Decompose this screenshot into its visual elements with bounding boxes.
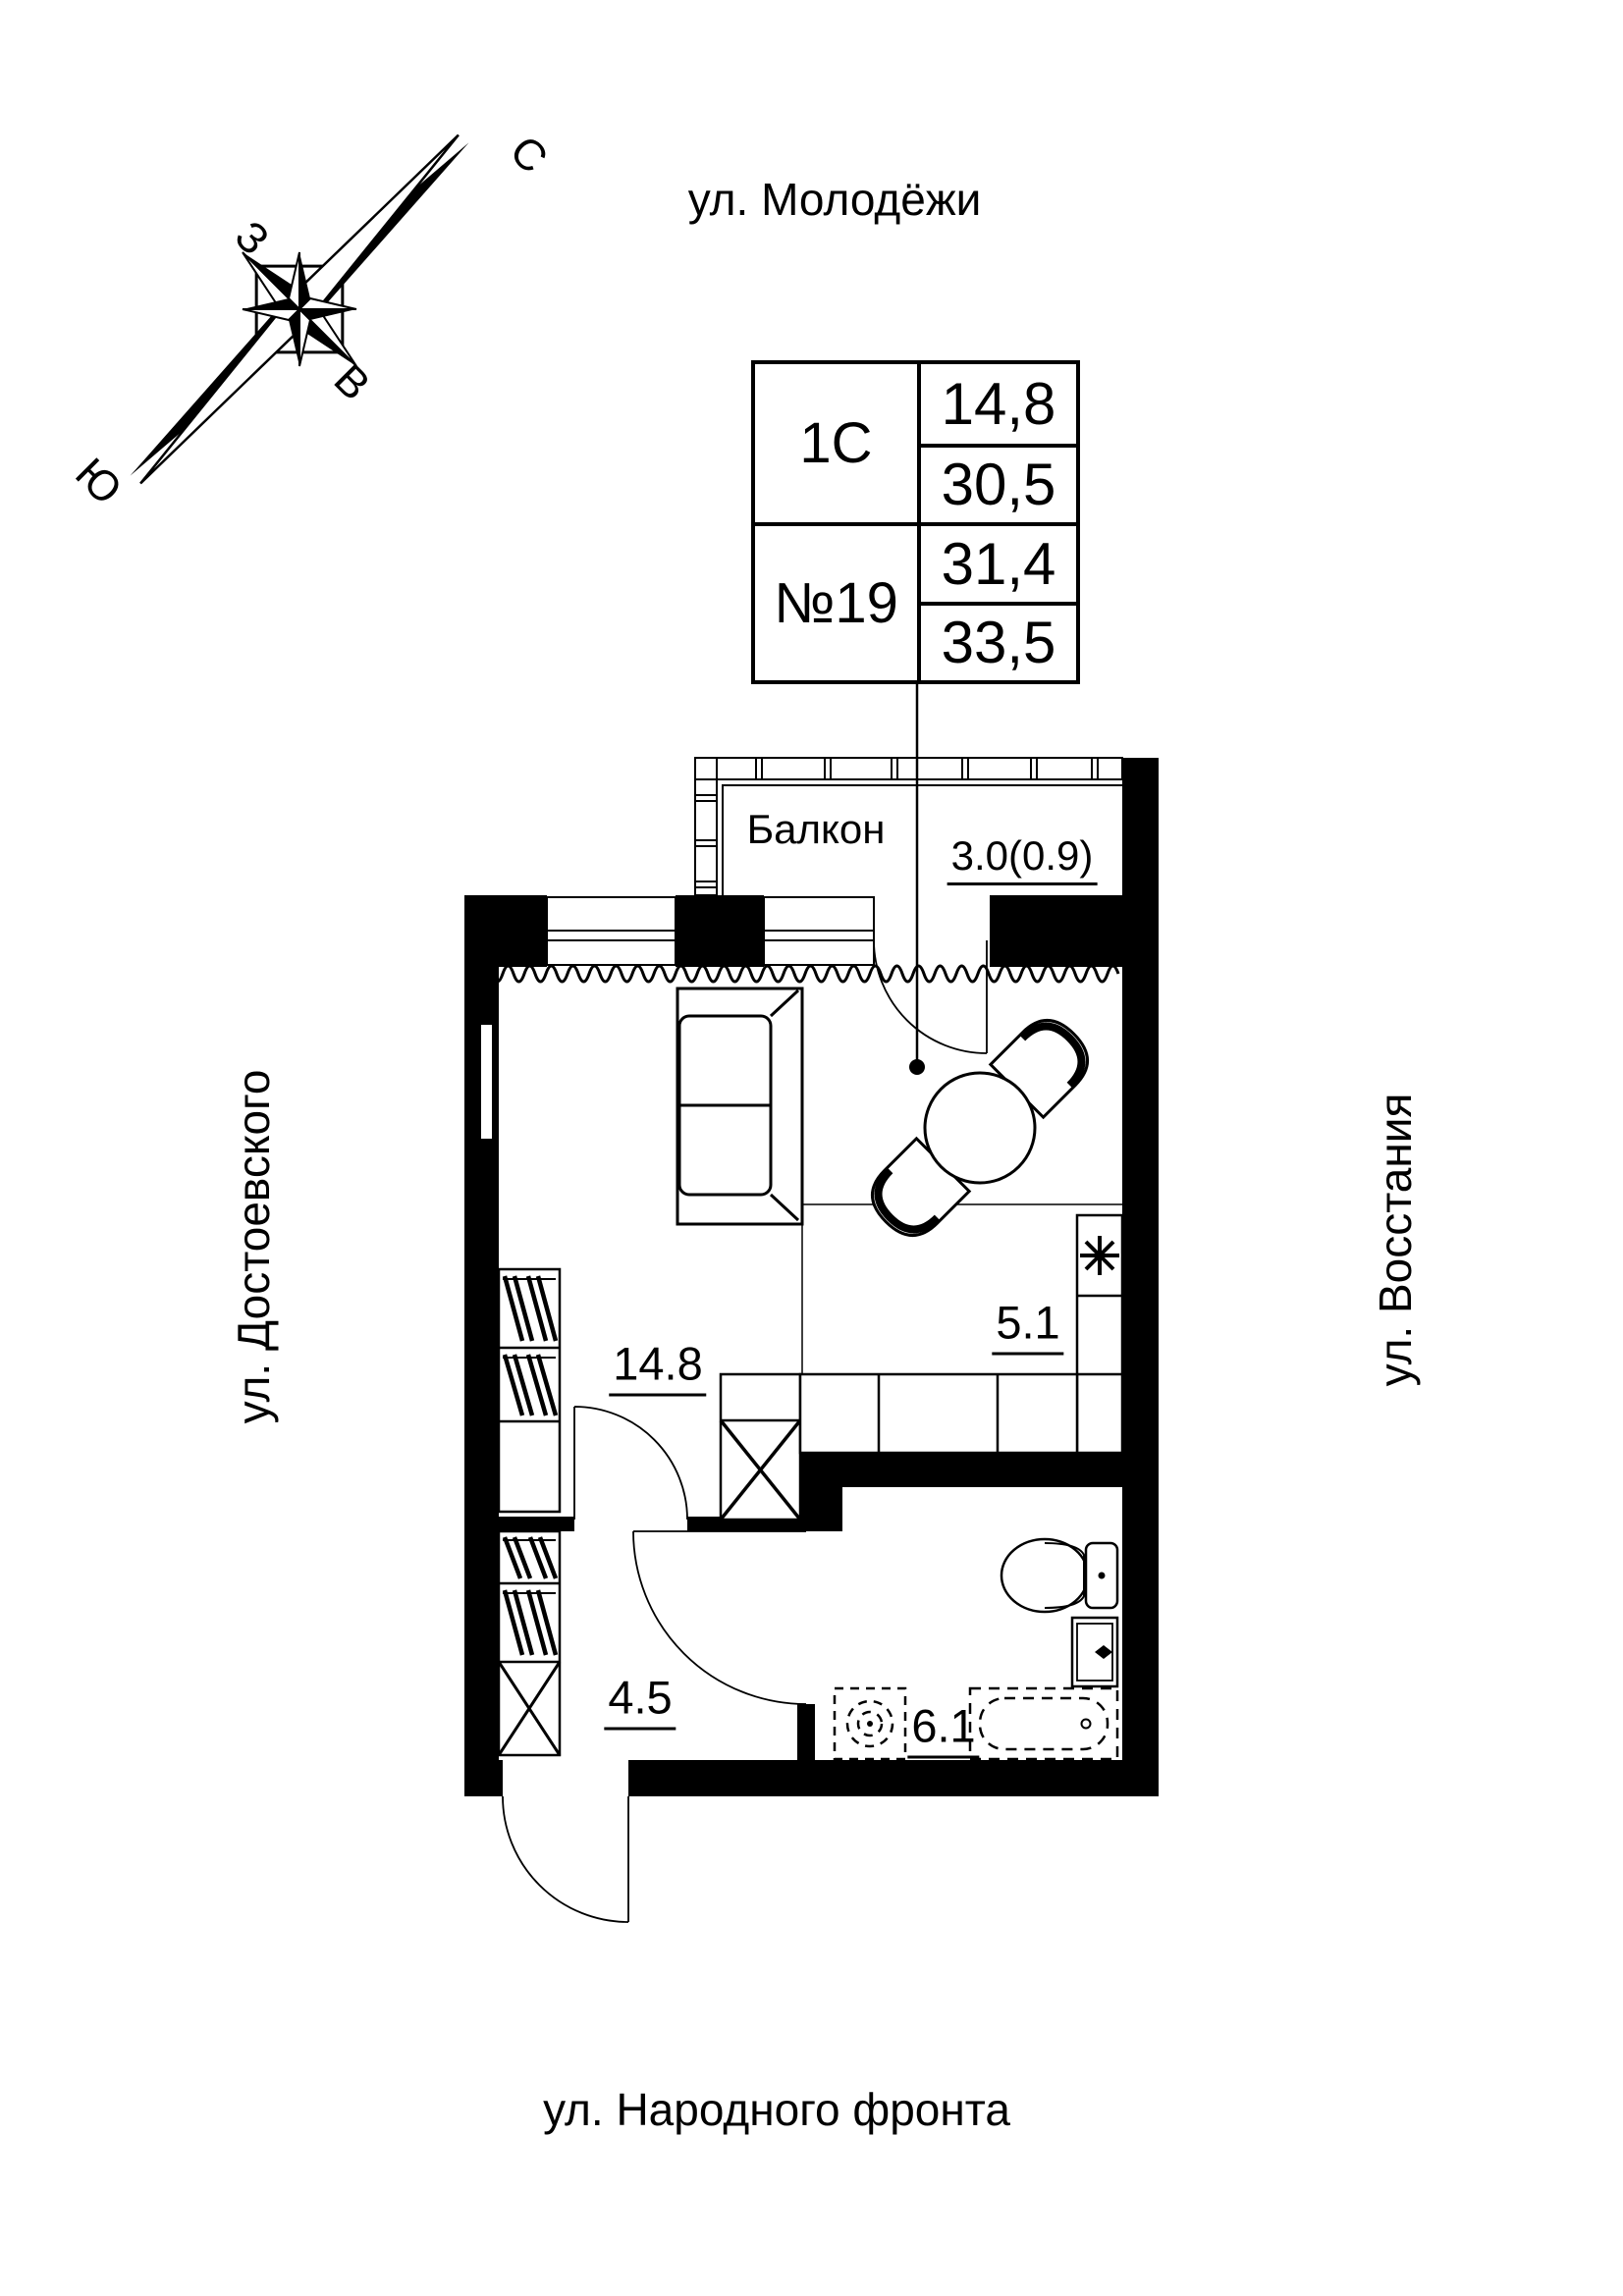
area-value-total: 30,5 [917,444,1076,523]
bathroom-area-label: 6.1 [907,1699,979,1753]
area-value-living: 14,8 [917,364,1076,444]
wardrobe-hallway [499,1531,560,1755]
unit-info-table: 1С №19 14,8 30,5 31,4 33,5 [751,360,1080,684]
kitchen-area-label: 5.1 [992,1296,1063,1350]
sofa-icon [677,988,802,1224]
street-label-left: ул. Достоевского [227,1070,280,1424]
unit-pointer-dot [909,1059,925,1075]
room-door [574,1407,687,1520]
balcony-label: Балкон [747,806,886,853]
unit-number-cell: №19 [755,522,917,680]
glazing-wave-line [481,966,1118,982]
balcony-area-label: 3.0(0.9) [947,832,1098,880]
unit-type-cell: 1С [755,364,917,522]
bathtub-icon [970,1688,1117,1759]
unit-leader-line [909,684,925,1075]
street-label-right: ул. Восстания [1369,1094,1422,1387]
floor-plan-page: ул. Молодёжи ул. Народного фронта ул. До… [0,0,1623,2296]
area-value-reduced: 31,4 [917,522,1076,602]
stove-burner-icon [1080,1236,1119,1275]
balcony-door [874,940,987,1053]
sink-icon [1072,1618,1117,1686]
street-label-top: ул. Молодёжи [688,173,982,226]
compass-rose-icon [75,84,524,534]
washing-machine-icon [835,1688,905,1759]
entrance-door [503,1796,628,1922]
wardrobe-living [499,1269,560,1512]
cabinet-crossed [721,1374,800,1520]
living-area-label: 14.8 [609,1337,706,1391]
toilet-icon [1001,1539,1117,1612]
kitchen-counter [800,1215,1122,1453]
radiator-icon [480,1024,493,1140]
kitchen-zone-line [802,1204,1122,1374]
hallway-area-label: 4.5 [604,1671,676,1725]
dining-set-icon [859,1007,1100,1248]
area-value-full: 33,5 [917,602,1076,681]
street-label-bottom: ул. Народного фронта [543,2083,1010,2136]
bathtub-drain [1082,1720,1091,1729]
